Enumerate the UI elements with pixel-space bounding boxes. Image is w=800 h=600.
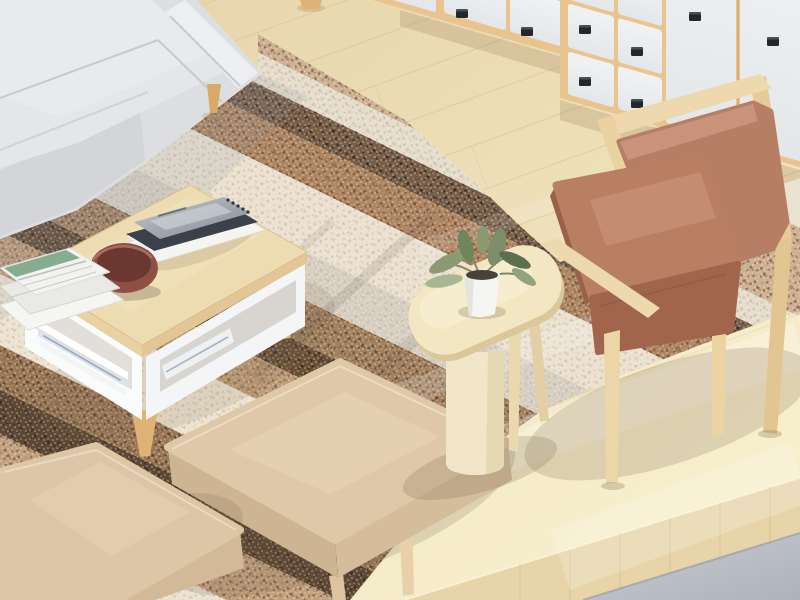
drawer-knob bbox=[521, 27, 533, 36]
cabinet-leg bbox=[297, 0, 325, 12]
drawer-knob bbox=[579, 25, 591, 34]
drawer-knob bbox=[631, 99, 643, 108]
drawer-knob bbox=[456, 9, 468, 18]
drawer-knob bbox=[631, 47, 643, 56]
drawer-knob bbox=[579, 77, 591, 86]
living-room-render bbox=[0, 0, 800, 600]
drawer-knob bbox=[689, 12, 701, 21]
chair-front-left-leg bbox=[604, 330, 620, 484]
render-scene bbox=[0, 0, 800, 600]
pedestal-shading bbox=[486, 352, 504, 474]
drawer-knob bbox=[767, 37, 779, 46]
plant-soil bbox=[466, 270, 498, 280]
